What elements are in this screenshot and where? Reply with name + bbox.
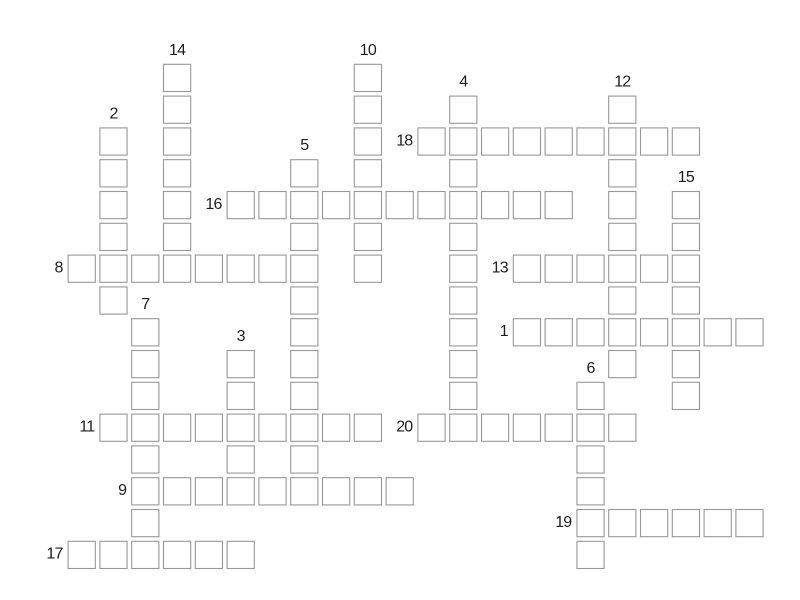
- svg-text:7: 7: [141, 296, 150, 313]
- svg-text:18: 18: [396, 132, 413, 149]
- svg-text:2: 2: [109, 105, 118, 122]
- svg-text:16: 16: [205, 196, 222, 213]
- svg-text:9: 9: [118, 482, 127, 499]
- svg-text:14: 14: [169, 42, 186, 59]
- svg-text:5: 5: [300, 137, 309, 154]
- svg-text:10: 10: [360, 42, 377, 59]
- svg-text:15: 15: [678, 169, 695, 186]
- svg-text:13: 13: [492, 260, 509, 277]
- svg-text:4: 4: [459, 74, 468, 91]
- svg-text:17: 17: [46, 546, 63, 563]
- svg-text:12: 12: [614, 74, 631, 91]
- svg-text:11: 11: [79, 419, 95, 436]
- svg-text:19: 19: [555, 514, 572, 531]
- svg-text:3: 3: [237, 328, 246, 345]
- svg-text:1: 1: [500, 323, 509, 340]
- svg-text:8: 8: [54, 260, 63, 277]
- svg-text:6: 6: [586, 360, 595, 377]
- svg-text:20: 20: [396, 419, 413, 436]
